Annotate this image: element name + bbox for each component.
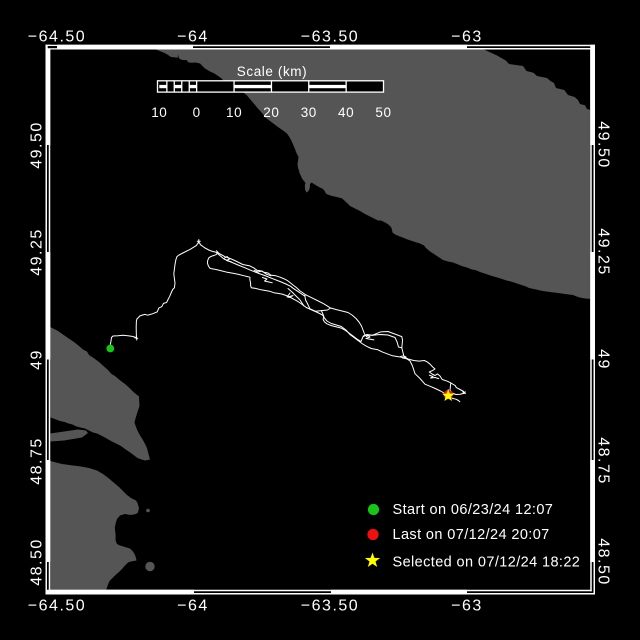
svg-text:49.25: 49.25 (595, 228, 612, 276)
svg-text:10: 10 (151, 105, 167, 120)
svg-text:−64: −64 (177, 598, 209, 615)
svg-text:−64.50: −64.50 (28, 598, 86, 615)
svg-text:−63: −63 (451, 598, 483, 615)
svg-text:−64: −64 (177, 29, 209, 46)
svg-text:49.50: 49.50 (595, 121, 612, 169)
svg-text:20: 20 (263, 105, 279, 120)
svg-text:49.50: 49.50 (29, 121, 46, 169)
svg-text:0: 0 (193, 105, 201, 120)
svg-text:49.25: 49.25 (29, 228, 46, 276)
svg-text:−63.50: −63.50 (301, 598, 359, 615)
svg-text:Selected on 07/12/24 18:22: Selected on 07/12/24 18:22 (393, 555, 581, 571)
svg-text:Last on 07/12/24 20:07: Last on 07/12/24 20:07 (393, 527, 550, 543)
svg-text:50: 50 (375, 105, 391, 120)
svg-text:48.75: 48.75 (595, 437, 612, 485)
svg-text:48.50: 48.50 (595, 538, 612, 586)
svg-text:49: 49 (595, 349, 612, 370)
svg-text:49: 49 (29, 349, 46, 370)
svg-text:30: 30 (301, 105, 317, 120)
svg-text:Scale (km): Scale (km) (237, 64, 308, 79)
svg-text:−63: −63 (451, 29, 483, 46)
svg-text:48.50: 48.50 (29, 538, 46, 586)
svg-text:40: 40 (338, 105, 354, 120)
svg-text:Start on 06/23/24 12:07: Start on 06/23/24 12:07 (393, 502, 554, 518)
svg-text:−63.50: −63.50 (301, 29, 359, 46)
svg-text:10: 10 (226, 105, 242, 120)
svg-text:48.75: 48.75 (29, 437, 46, 485)
svg-text:−64.50: −64.50 (28, 29, 86, 46)
